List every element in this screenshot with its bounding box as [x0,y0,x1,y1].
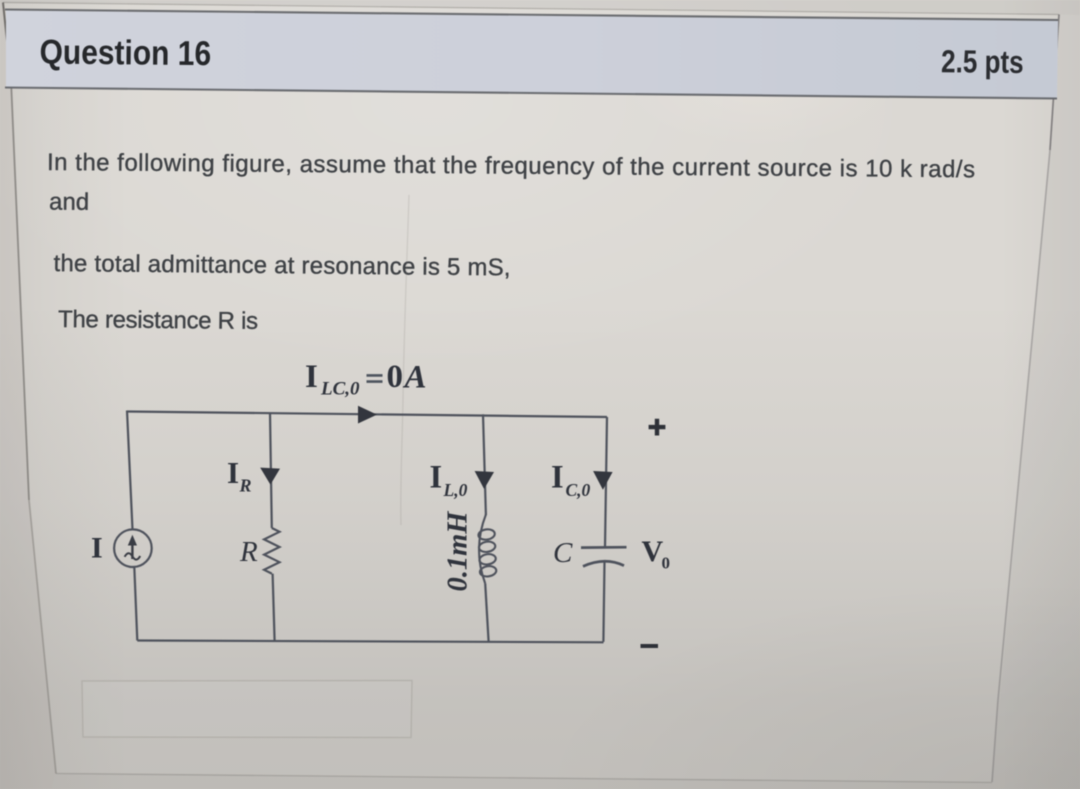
svg-text:I: I [430,460,443,496]
svg-text:I: I [91,532,103,565]
svg-text:0: 0 [387,359,404,395]
svg-text:0: 0 [662,554,671,573]
svg-text:and: and [49,189,89,216]
svg-text:0.1mH: 0.1mH [443,511,474,592]
svg-text:In the following figure, assum: In the following figure, assume that the… [47,149,975,183]
svg-text:L,0: L,0 [443,480,468,500]
svg-text:LC,0: LC,0 [320,379,360,400]
svg-text:C,0: C,0 [566,480,591,500]
svg-text:I: I [551,460,564,496]
svg-text:A: A [403,360,427,396]
svg-text:Question 16: Question 16 [39,34,211,74]
svg-text:2.5 pts: 2.5 pts [941,43,1024,80]
svg-text:The resistance R is: The resistance R is [58,306,258,335]
svg-text:I: I [227,455,239,490]
svg-text:R: R [239,476,252,496]
svg-text:the total admittance at resona: the total admittance at resonance is 5 m… [53,250,510,281]
svg-text:V: V [642,535,664,568]
svg-text:I: I [305,359,318,395]
svg-text:R: R [239,536,258,568]
svg-text:C: C [553,537,573,569]
